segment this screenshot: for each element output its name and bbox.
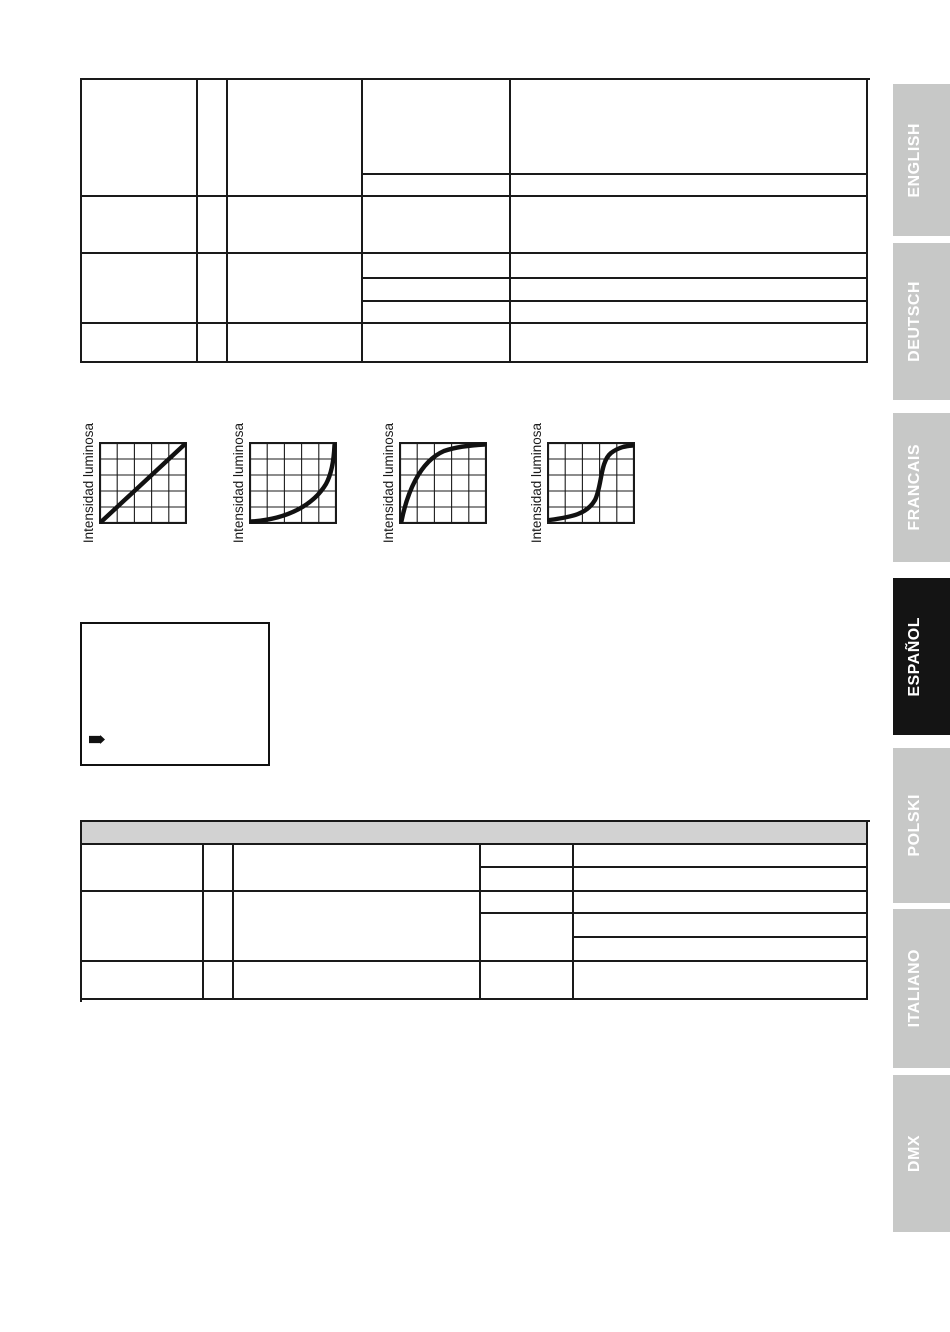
table-cell (204, 892, 234, 962)
table-header-band (82, 822, 868, 845)
table-cell (204, 962, 234, 1000)
table-cell (198, 254, 228, 324)
table-cell (511, 175, 868, 197)
table-cell (82, 892, 204, 962)
table-cell (204, 845, 234, 892)
table-cell (511, 279, 868, 302)
table-cell (511, 302, 868, 324)
lang-tab-dmx: DMX (893, 1075, 950, 1232)
table-cell (198, 80, 228, 197)
lang-tab-label: DEUTSCH (906, 281, 924, 362)
chart-ylabel: Intensidad luminosa (380, 423, 397, 543)
table-cell (481, 892, 574, 914)
table-cell (574, 914, 868, 938)
table-cell (234, 845, 481, 892)
spec-table-bottom (80, 820, 870, 1002)
table-cell (511, 254, 868, 279)
table-cell (574, 892, 868, 914)
dimmer-curve-s-chart (547, 442, 635, 524)
table-cell (82, 80, 198, 197)
dimmer-curve-s: Intensidad luminosa (528, 424, 635, 542)
table-cell (363, 324, 511, 363)
lang-tab-label: POLSKI (906, 794, 924, 857)
table-cell (228, 254, 363, 324)
table-cell (198, 197, 228, 254)
dimmer-curve-linear-chart (99, 442, 187, 524)
table-cell (363, 80, 511, 175)
lang-tab-label: ESPAÑOL (906, 617, 924, 697)
table-cell (481, 845, 574, 868)
lang-tab-english: ENGLISH (893, 84, 950, 236)
table-cell (511, 80, 868, 175)
arrow-right-icon (89, 735, 105, 744)
dimmer-curve-logarithmic-chart (399, 442, 487, 524)
table-cell (82, 254, 198, 324)
dimmer-curve-logarithmic: Intensidad luminosa (380, 424, 487, 542)
table-cell (363, 279, 511, 302)
table-cell (574, 845, 868, 868)
table-cell (511, 197, 868, 254)
table-cell (363, 302, 511, 324)
table-cell (574, 938, 868, 962)
lang-tab-francais: FRANCAIS (893, 413, 950, 562)
table-cell (481, 868, 574, 892)
chart-ylabel: Intensidad luminosa (528, 423, 545, 543)
lang-tab-espanol: ESPAÑOL (893, 578, 950, 735)
table-cell (363, 175, 511, 197)
table-cell (234, 892, 481, 962)
display-box (80, 622, 270, 766)
table-cell (82, 962, 204, 1000)
table-cell (228, 197, 363, 254)
table-cell (228, 324, 363, 363)
dimmer-curve-exponential-chart (249, 442, 337, 524)
chart-ylabel: Intensidad luminosa (80, 423, 97, 543)
dimmer-curve-linear: Intensidad luminosa (80, 424, 187, 542)
lang-tab-polski: POLSKI (893, 748, 950, 903)
table-cell (481, 962, 574, 1000)
lang-tab-deutsch: DEUTSCH (893, 243, 950, 400)
lang-tab-italiano: ITALIANO (893, 909, 950, 1068)
table-cell (481, 914, 574, 962)
lang-tab-label: FRANCAIS (906, 444, 924, 531)
table-cell (82, 197, 198, 254)
lang-tab-label: ENGLISH (906, 123, 924, 198)
chart-ylabel: Intensidad luminosa (230, 423, 247, 543)
manual-page: Intensidad luminosa Intensidad luminosa … (0, 0, 950, 1332)
table-cell (82, 845, 204, 892)
table-cell (363, 197, 511, 254)
table-cell (511, 324, 868, 363)
lang-tab-label: DMX (906, 1135, 924, 1172)
table-cell (234, 962, 481, 1000)
table-cell (363, 254, 511, 279)
lang-tab-label: ITALIANO (906, 949, 924, 1027)
table-cell (574, 962, 868, 1000)
table-cell (228, 80, 363, 197)
table-cell (198, 324, 228, 363)
table-cell (574, 868, 868, 892)
table-cell (82, 324, 198, 363)
dimmer-curve-exponential: Intensidad luminosa (230, 424, 337, 542)
spec-table-top (80, 78, 870, 363)
